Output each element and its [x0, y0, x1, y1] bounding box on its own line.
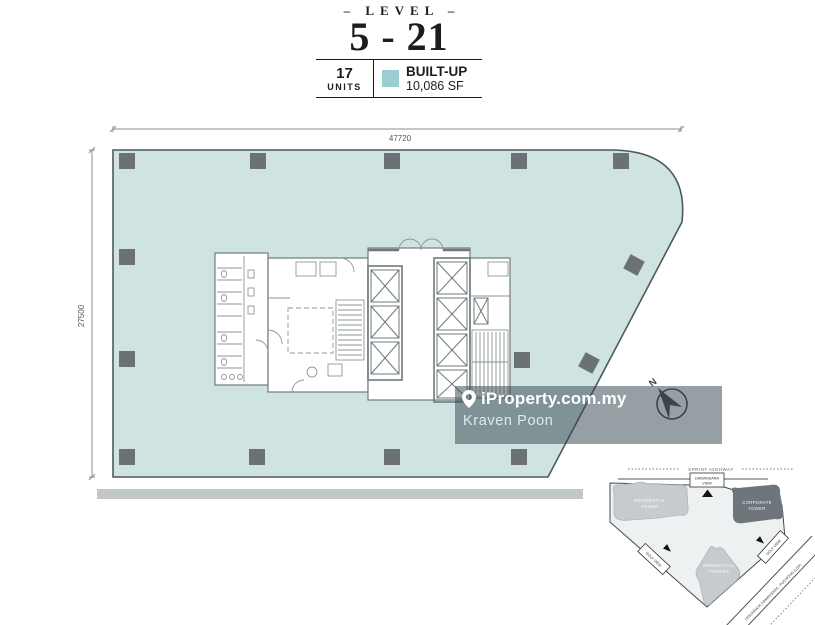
- dimension-width-label: 47720: [389, 134, 412, 143]
- corporate-tower-label-2: TOWER: [748, 506, 765, 511]
- corporate-tower-label-1: CORPORATE: [742, 500, 772, 505]
- highway-label: SPRINT HIGHWAY: [688, 467, 734, 472]
- junction-view-label-2: VIEW: [702, 482, 712, 486]
- ground-strip: [97, 489, 583, 499]
- site-location-map: SPRINT HIGHWAY RESIDENTIAL TOWER CORPORA…: [598, 450, 815, 625]
- corporate-tower: CORPORATE TOWER: [732, 485, 784, 524]
- residential-towers-south-label-2: TOWERS: [709, 569, 730, 574]
- residential-tower-main: RESIDENTIAL TOWER: [613, 482, 688, 520]
- watermark-agent: Kraven Poon: [463, 413, 553, 429]
- junction-view-label-1: DAMANSARA: [695, 477, 720, 481]
- watermark-brand: iProperty.com.my: [462, 389, 627, 409]
- watermark-brand-text: iProperty.com.my: [481, 389, 627, 409]
- core-walls: [215, 248, 510, 400]
- dimension-height-label: 27500: [77, 304, 86, 327]
- service-core: [215, 239, 510, 402]
- residential-tower-main-label-2: TOWER: [641, 504, 658, 509]
- residential-tower-main-label-1: RESIDENTIAL: [634, 498, 666, 503]
- road-label: LEBUHRAYA DAMANSARA - PUCHONG (LDP): [744, 563, 802, 621]
- floorplan-page: – LEVEL – 5 - 21 17 UNITS BUILT-UP 10,08…: [0, 0, 815, 625]
- residential-towers-south-label-1: RESIDENTIAL: [703, 563, 735, 568]
- location-pin-icon: [462, 390, 476, 408]
